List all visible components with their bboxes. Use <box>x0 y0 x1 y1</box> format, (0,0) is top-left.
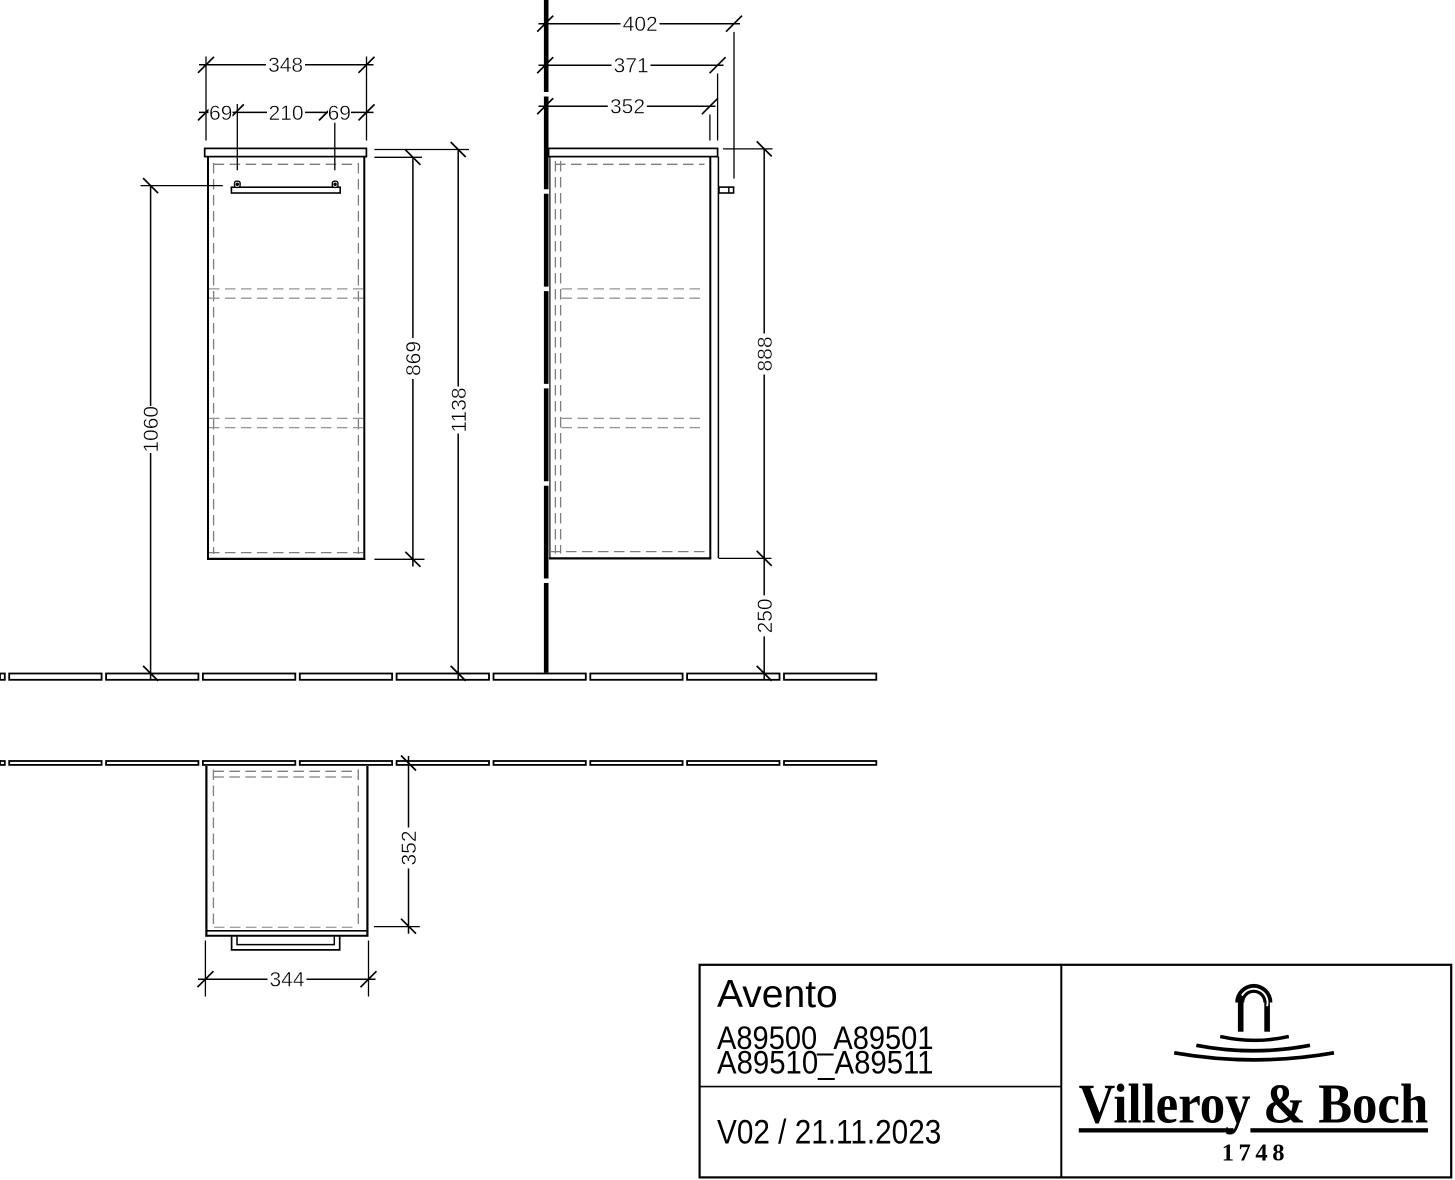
svg-text:888: 888 <box>754 336 777 371</box>
svg-text:69: 69 <box>209 102 232 125</box>
svg-text:402: 402 <box>623 13 658 36</box>
svg-text:352: 352 <box>610 96 645 119</box>
svg-text:1748: 1748 <box>1222 1139 1289 1166</box>
svg-text:371: 371 <box>614 55 649 78</box>
svg-text:1060: 1060 <box>140 406 163 453</box>
svg-text:Avento: Avento <box>717 973 838 1016</box>
svg-text:A89510_A89511: A89510_A89511 <box>717 1045 934 1081</box>
svg-text:869: 869 <box>403 341 426 376</box>
svg-text:250: 250 <box>754 598 777 633</box>
svg-text:1138: 1138 <box>448 387 471 432</box>
svg-text:352: 352 <box>398 830 421 865</box>
svg-text:348: 348 <box>268 54 303 77</box>
svg-text:V02 / 21.11.2023: V02 / 21.11.2023 <box>717 1114 941 1152</box>
svg-text:210: 210 <box>268 102 303 125</box>
svg-text:344: 344 <box>269 969 304 992</box>
svg-text:Villeroy & Boch: Villeroy & Boch <box>1079 1073 1429 1135</box>
svg-text:69: 69 <box>328 102 351 125</box>
